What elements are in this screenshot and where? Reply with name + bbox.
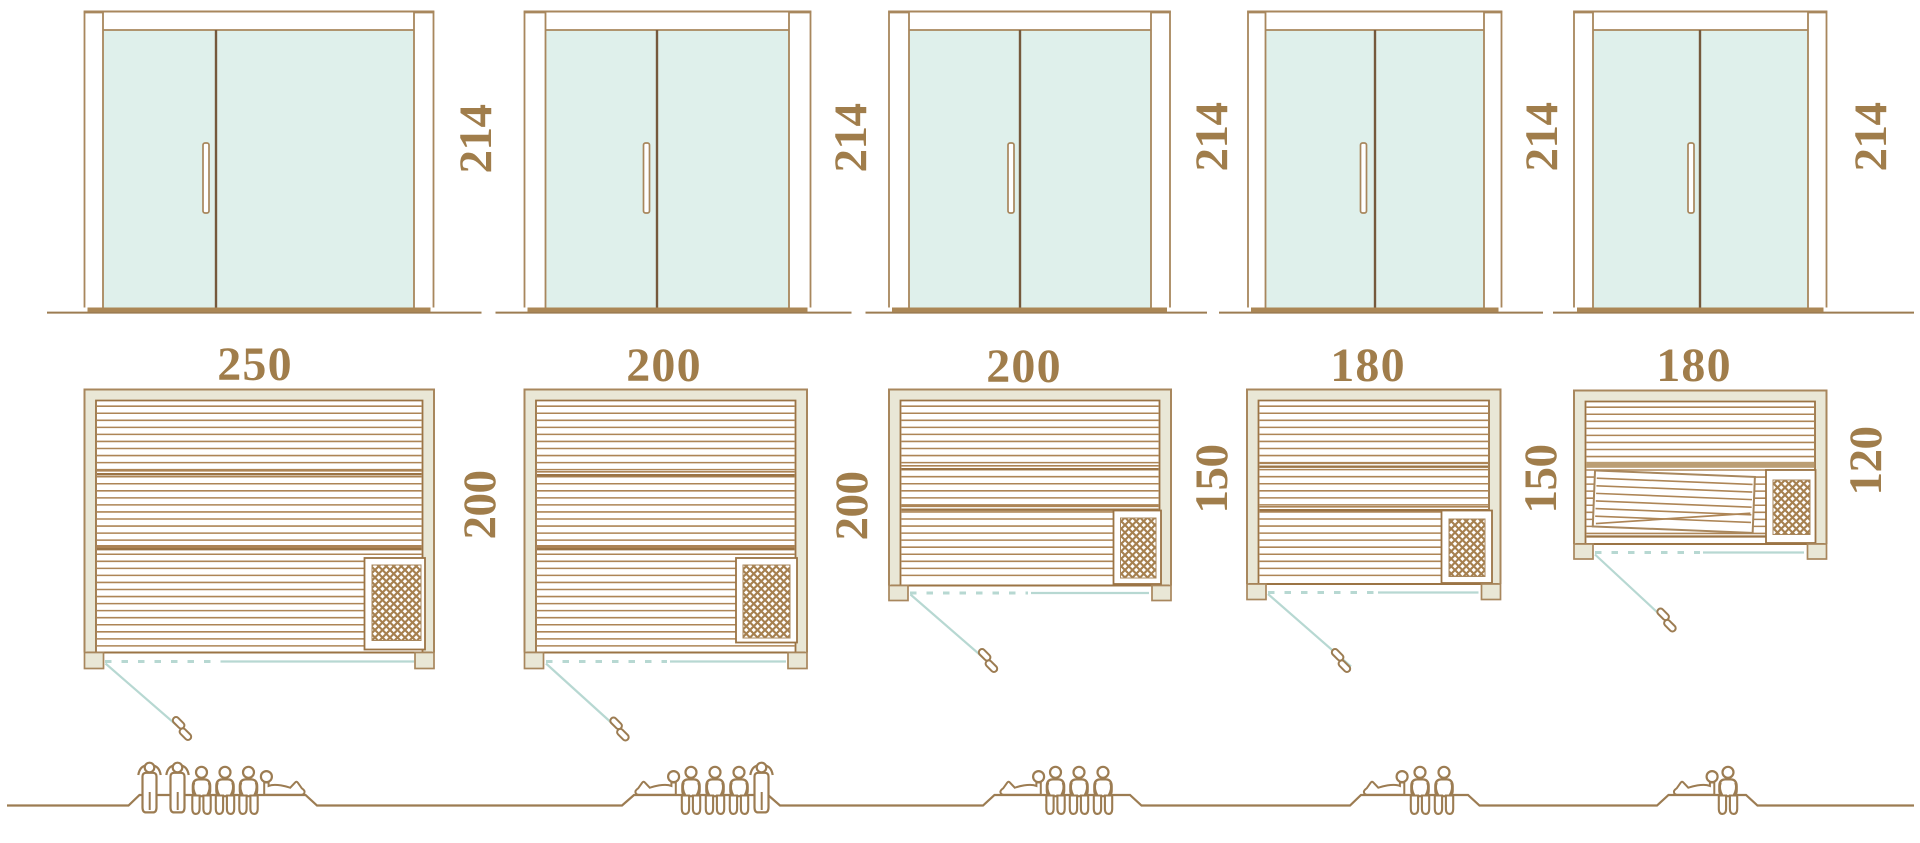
svg-text:200: 200 xyxy=(986,340,1062,393)
svg-text:214: 214 xyxy=(1516,103,1568,172)
svg-text:180: 180 xyxy=(1656,339,1732,392)
svg-text:250: 250 xyxy=(217,338,293,391)
svg-text:150: 150 xyxy=(1186,445,1238,514)
svg-text:120: 120 xyxy=(1840,427,1892,496)
svg-text:214: 214 xyxy=(825,104,877,173)
svg-text:214: 214 xyxy=(1186,103,1238,172)
svg-text:200: 200 xyxy=(826,472,878,541)
svg-text:214: 214 xyxy=(450,105,502,174)
svg-text:200: 200 xyxy=(454,471,506,540)
svg-text:150: 150 xyxy=(1515,445,1567,514)
svg-text:180: 180 xyxy=(1330,339,1406,392)
svg-text:200: 200 xyxy=(626,339,702,392)
svg-text:214: 214 xyxy=(1845,103,1897,172)
